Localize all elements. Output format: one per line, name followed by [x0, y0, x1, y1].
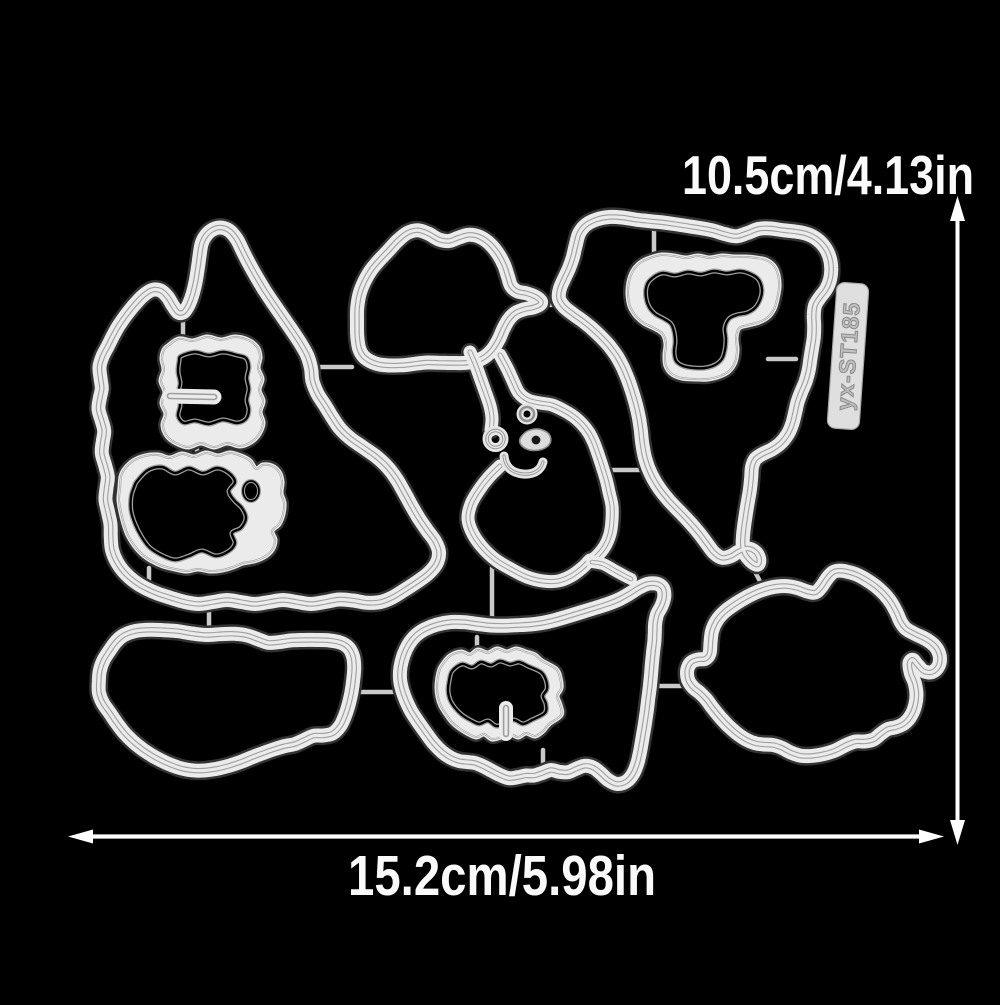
svg-text:10.5cm/4.13in: 10.5cm/4.13in	[682, 144, 974, 206]
svg-text:15.2cm/5.98in: 15.2cm/5.98in	[348, 844, 656, 908]
